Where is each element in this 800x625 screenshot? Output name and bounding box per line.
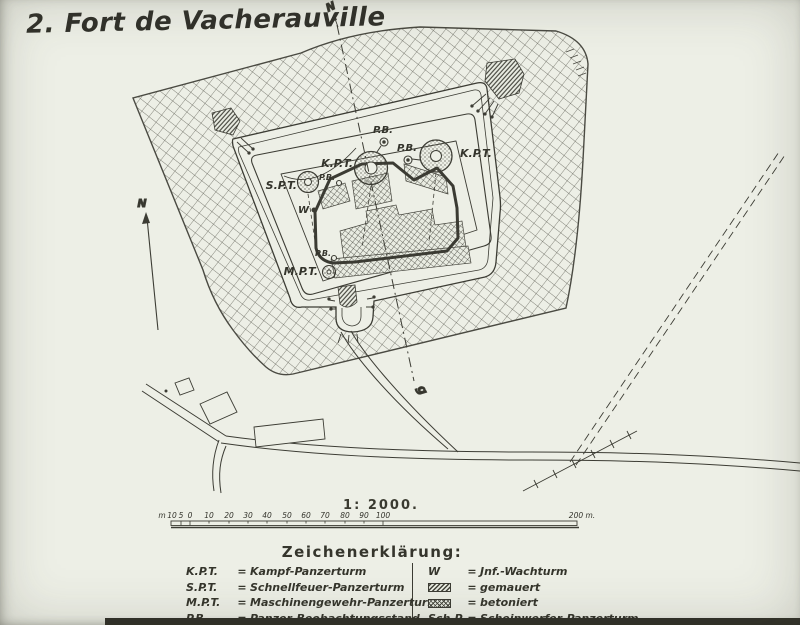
legend-abbr: W (428, 565, 464, 578)
label-pb-bottom: P.B. (315, 249, 331, 258)
legend-heading: Zeichenerklärung: (252, 543, 492, 561)
north-letter: N (137, 197, 146, 210)
legend-row-betoniert: = betoniert (428, 596, 639, 609)
point-symbol (165, 390, 168, 393)
turret-mpt (323, 266, 336, 279)
svg-text:50: 50 (282, 511, 292, 520)
cross-hatch-swatch-icon (428, 599, 451, 608)
scale-bar: m 10 5 0 10 20 30 40 50 60 70 80 90 100 … (158, 511, 595, 528)
svg-text:10: 10 (167, 511, 177, 520)
legend-row-gemauert: = gemauert (428, 581, 639, 594)
label-kpt-center: K.P.T. (321, 157, 353, 170)
legend-term: Jnf.-Wachturm (480, 565, 639, 578)
buildings (165, 378, 326, 447)
gorge-blockhouse (338, 285, 357, 307)
north-arrowhead-icon (142, 212, 150, 224)
legend-right-column: W = Jnf.-Wachturm = gemauert = betoniert… (428, 565, 639, 625)
building-medium (200, 392, 237, 424)
scale-ratio: 1: 2000. (321, 498, 441, 513)
scanned-fort-plan-page: P.B. K.P.T. P.B. K.P.T. S.P.T. P.B. W P.… (0, 0, 800, 625)
legend-term: betoniert (480, 596, 639, 609)
watchtower-mark (312, 208, 316, 212)
label-pb-right: P.B. (397, 143, 417, 154)
svg-text:5: 5 (179, 511, 184, 520)
legend-row-wachturm: W = Jnf.-Wachturm (428, 565, 639, 578)
legend-abbr: M.P.T. (186, 596, 234, 609)
dashed-track (570, 152, 785, 465)
axis-south-letter: g (414, 383, 431, 398)
svg-text:20: 20 (224, 511, 234, 520)
turret-spt (298, 172, 319, 193)
svg-text:60: 60 (301, 511, 311, 520)
building-long (254, 419, 325, 447)
building-small (175, 378, 194, 395)
svg-text:40: 40 (262, 511, 272, 520)
legend-term: gemauert (480, 581, 639, 594)
legend-abbr: S.P.T. (186, 581, 234, 594)
legend-term: Maschinengewehr-Panzerturm (250, 596, 439, 609)
label-watchtower: W (298, 205, 310, 216)
label-spt: S.P.T. (266, 179, 297, 192)
fort-plan-svg: P.B. K.P.T. P.B. K.P.T. S.P.T. P.B. W P.… (0, 0, 800, 625)
svg-text:0: 0 (188, 511, 193, 520)
label-mpt: M.P.T. (284, 265, 318, 278)
svg-text:30: 30 (243, 511, 253, 520)
svg-text:10: 10 (204, 511, 214, 520)
scale-end-label: 200 m. (569, 511, 595, 520)
label-kpt-right: K.P.T. (460, 147, 492, 160)
legend-row-kpt: K.P.T. = Kampf-Panzerturm (186, 565, 439, 578)
legend-row-spt: S.P.T. = Schnellfeuer-Panzerturm (186, 581, 439, 594)
scale-unit: m (158, 511, 165, 520)
turret-kpt-right (420, 140, 452, 172)
legend-abbr: K.P.T. (186, 565, 234, 578)
label-pb-top: P.B. (373, 125, 393, 136)
legend-term: Kampf-Panzerturm (250, 565, 439, 578)
legend-row-mpt: M.P.T. = Maschinengewehr-Panzerturm (186, 596, 439, 609)
photo-edge-strip (105, 618, 800, 625)
turret-kpt-center (355, 152, 388, 185)
branch-road-south (213, 440, 226, 493)
north-arrow: N (137, 197, 158, 330)
label-pb-left: P.B. (319, 173, 335, 182)
legend-left-column: K.P.T. = Kampf-Panzerturm S.P.T. = Schne… (186, 565, 439, 625)
legend-term: Schnellfeuer-Panzerturm (250, 581, 439, 594)
diagonal-hatch-swatch-icon (428, 583, 451, 592)
roads (142, 331, 800, 493)
